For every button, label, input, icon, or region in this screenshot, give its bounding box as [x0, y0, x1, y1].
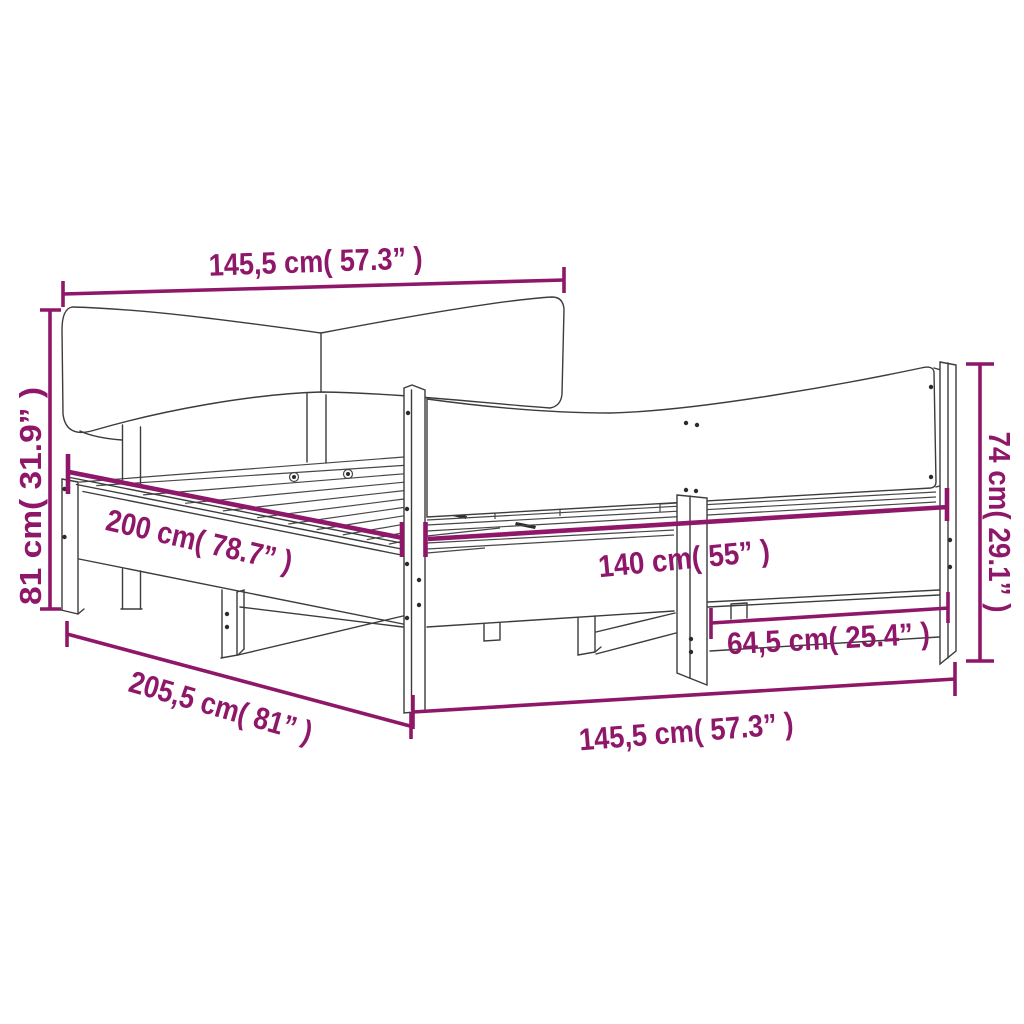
svg-text:81 cm( 31.9” ): 81 cm( 31.9” ) [13, 387, 48, 605]
svg-text:74 cm( 29.1” ): 74 cm( 29.1” ) [982, 432, 1017, 613]
svg-text:145,5 cm( 57.3” ): 145,5 cm( 57.3” ) [208, 240, 423, 282]
